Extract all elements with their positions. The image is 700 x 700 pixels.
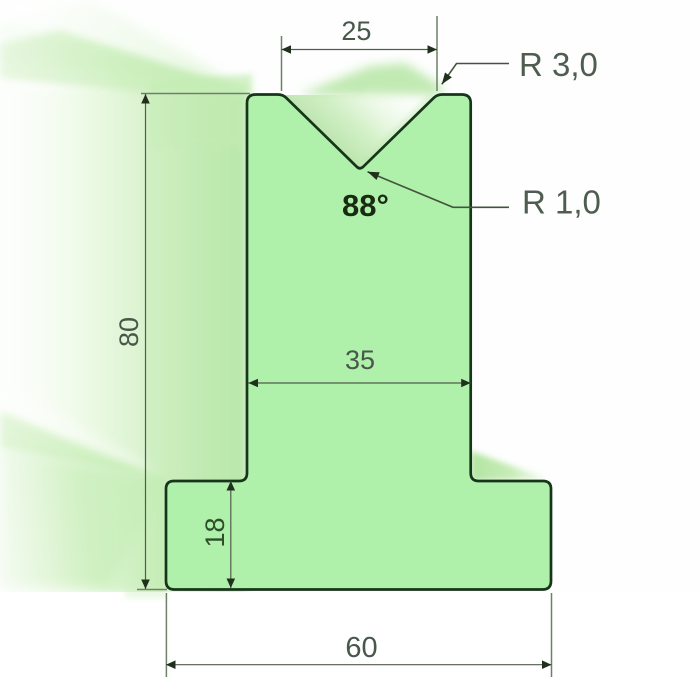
svg-text:25: 25 xyxy=(341,16,371,46)
svg-text:R 1,0: R 1,0 xyxy=(522,183,601,220)
svg-text:R 3,0: R 3,0 xyxy=(519,46,598,83)
svg-text:60: 60 xyxy=(345,632,377,664)
svg-text:18: 18 xyxy=(200,517,230,547)
svg-text:88°: 88° xyxy=(342,188,389,223)
svg-text:80: 80 xyxy=(114,317,144,347)
svg-text:35: 35 xyxy=(345,345,375,375)
